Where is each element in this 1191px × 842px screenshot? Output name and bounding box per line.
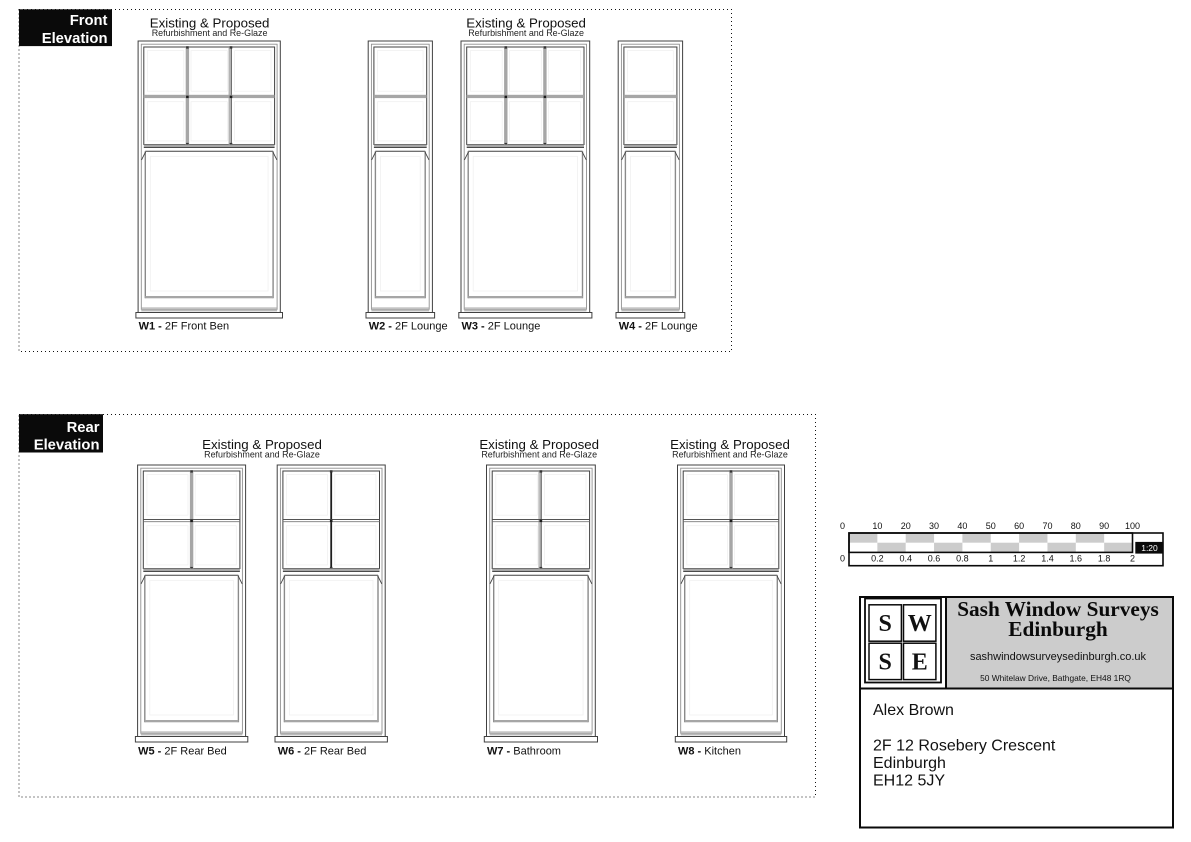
svg-text:90: 90 [1099,521,1109,531]
svg-text:W: W [908,611,932,637]
svg-text:sashwindowsurveysedinburgh.co.: sashwindowsurveysedinburgh.co.uk [970,651,1147,663]
svg-text:Alex Brown: Alex Brown [873,702,954,719]
svg-text:1.4: 1.4 [1041,553,1054,563]
svg-text:0.8: 0.8 [956,553,969,563]
svg-text:Elevation: Elevation [42,31,108,47]
svg-text:1: 1 [988,553,993,563]
svg-text:Elevation: Elevation [34,438,100,454]
svg-text:W8 - Kitchen: W8 - Kitchen [678,746,741,758]
svg-text:50 Whitelaw Drive, Bathgate, E: 50 Whitelaw Drive, Bathgate, EH48 1RQ [980,673,1131,683]
svg-text:S: S [879,611,892,637]
svg-text:0: 0 [840,553,845,563]
svg-text:1.2: 1.2 [1013,553,1026,563]
svg-text:Edinburgh: Edinburgh [1008,617,1108,641]
svg-text:1:20: 1:20 [1141,543,1158,553]
svg-text:W6 - 2F Rear Bed: W6 - 2F Rear Bed [278,746,367,758]
svg-text:Rear: Rear [67,420,100,436]
svg-text:W4 - 2F Lounge: W4 - 2F Lounge [619,321,698,333]
svg-text:30: 30 [929,521,939,531]
svg-text:60: 60 [1014,521,1024,531]
svg-text:10: 10 [872,521,882,531]
svg-text:E: E [912,650,928,676]
svg-text:80: 80 [1071,521,1081,531]
svg-text:20: 20 [901,521,911,531]
svg-text:S: S [879,650,892,676]
svg-text:1.8: 1.8 [1098,553,1111,563]
svg-text:W2 - 2F Lounge: W2 - 2F Lounge [369,321,448,333]
svg-text:W5 - 2F Rear Bed: W5 - 2F Rear Bed [138,746,227,758]
svg-text:0: 0 [840,521,845,531]
svg-text:0.6: 0.6 [928,553,941,563]
svg-text:Front: Front [70,13,108,29]
svg-text:40: 40 [957,521,967,531]
svg-text:100: 100 [1125,521,1140,531]
svg-text:EH12 5JY: EH12 5JY [873,773,945,790]
svg-text:Refurbishment and Re-Glaze: Refurbishment and Re-Glaze [481,450,597,460]
svg-text:70: 70 [1042,521,1052,531]
svg-text:Refurbishment and Re-Glaze: Refurbishment and Re-Glaze [204,450,320,460]
svg-text:0.4: 0.4 [899,553,912,563]
svg-text:Refurbishment and Re-Glaze: Refurbishment and Re-Glaze [468,28,584,38]
svg-text:Edinburgh: Edinburgh [873,755,946,772]
svg-text:Refurbishment and Re-Glaze: Refurbishment and Re-Glaze [152,28,268,38]
svg-text:1.6: 1.6 [1070,553,1083,563]
svg-text:2F 12 Rosebery Crescent: 2F 12 Rosebery Crescent [873,737,1056,754]
svg-text:0.2: 0.2 [871,553,884,563]
svg-text:Refurbishment and Re-Glaze: Refurbishment and Re-Glaze [672,450,788,460]
svg-text:W7 - Bathroom: W7 - Bathroom [487,746,561,758]
svg-text:W3 - 2F Lounge: W3 - 2F Lounge [462,321,541,333]
svg-text:W1 - 2F Front Ben: W1 - 2F Front Ben [139,321,229,333]
svg-text:50: 50 [986,521,996,531]
svg-text:2: 2 [1130,553,1135,563]
